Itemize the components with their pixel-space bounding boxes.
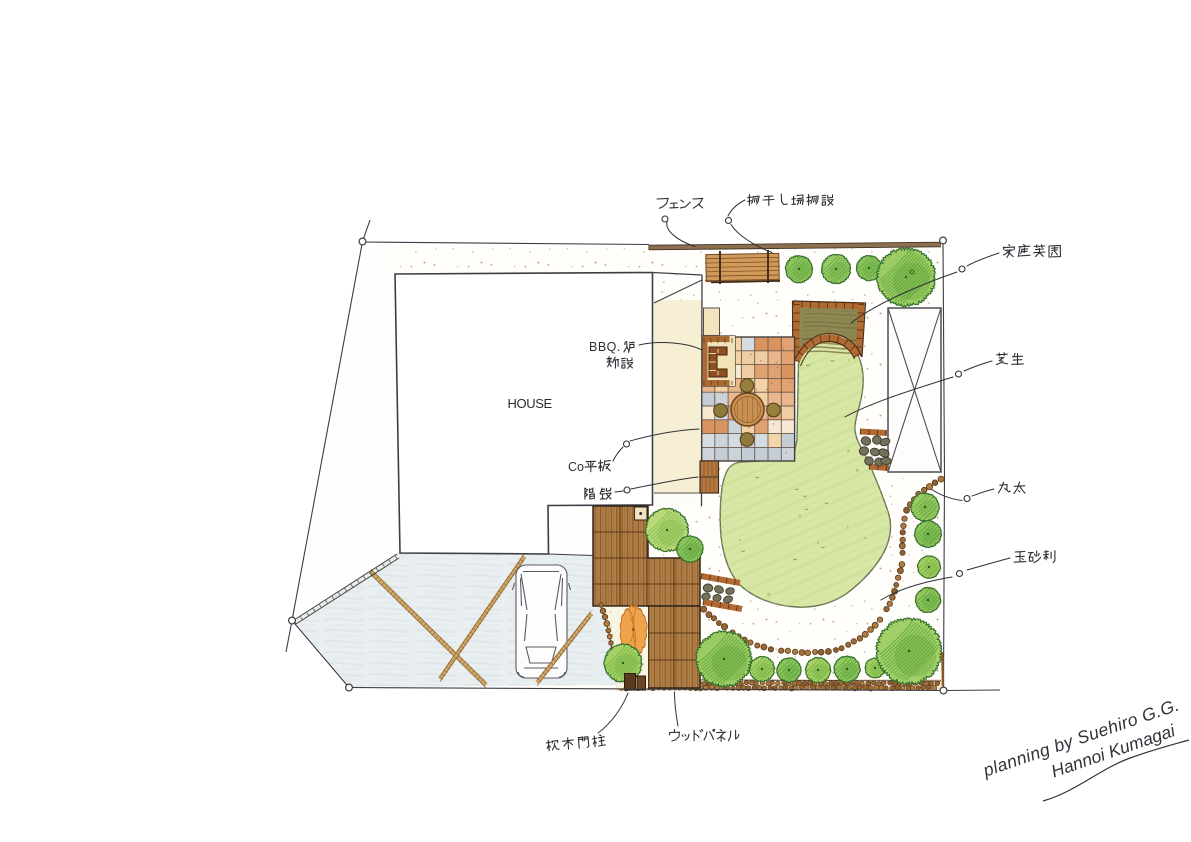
svg-text:HOUSE: HOUSE	[508, 396, 553, 411]
svg-text:Co: Co	[568, 460, 584, 474]
svg-text:BBQ.: BBQ.	[589, 340, 621, 354]
